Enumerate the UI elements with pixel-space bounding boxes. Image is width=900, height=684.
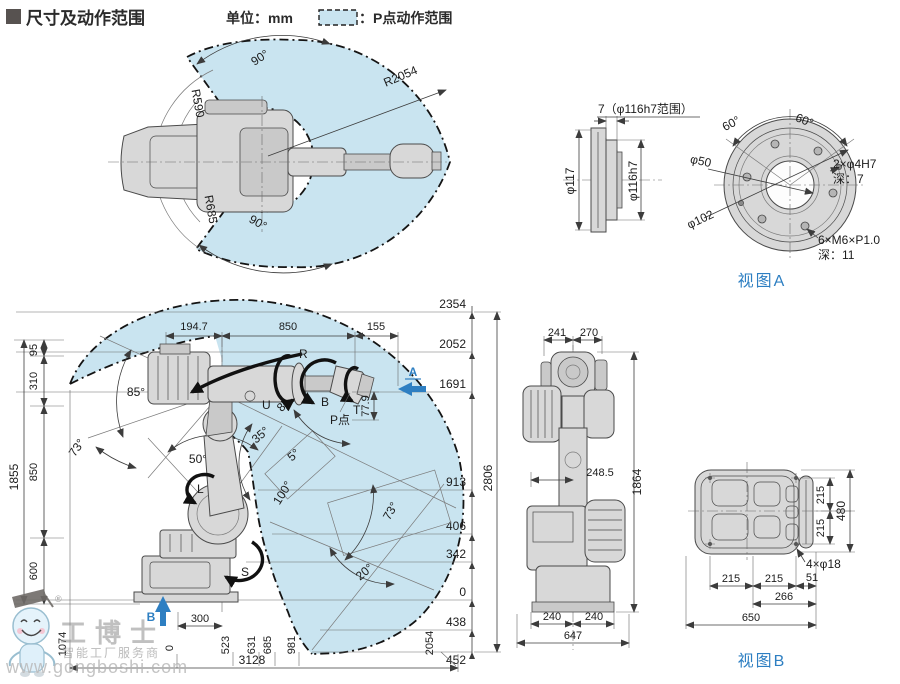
watermark-registered: ® [55,594,62,604]
dim-194-7: 194.7 [180,321,208,333]
pin-depth-note: 深：7 [833,172,864,186]
overall-height-label: 2806 [481,464,495,491]
dim-77-9: 77.9 [360,395,372,416]
dim-215d: 215 [765,573,783,585]
drawing-canvas: 尺寸及动作范围 单位：mm ：P点动作范围 90° R2054 [0,0,900,684]
dim-215c: 215 [722,573,740,585]
level-913: 913 [446,475,466,489]
flange-width-note: 7（φ116h7范围） [598,102,693,116]
pos-685: 685 [262,636,274,654]
l-axis-label: L [197,482,204,496]
level-452: 452 [446,653,466,667]
dia50-label: φ50 [689,152,713,170]
flange-dia117-label: φ117 [563,167,577,194]
u-axis-label: U [262,398,271,412]
dim-248-5: 248.5 [586,467,614,479]
level-1691: 1691 [439,377,466,391]
angle-50: 50° [189,452,207,466]
dim-647: 647 [564,630,582,642]
view-a-label: 视图A [738,272,787,290]
legend-label: ：P点动作范围 [359,10,452,26]
header: 尺寸及动作范围 单位：mm ：P点动作范围 [6,8,452,28]
level-2052: 2052 [439,337,466,351]
base-view: 215 215 480 4×φ18 215 215 51 266 650 视图B [686,462,855,670]
dim-51: 51 [806,572,818,584]
view-b-label: 视图B [738,652,787,670]
dia102-label: φ102 [685,207,716,232]
flange-dia116-label: φ116h7 [626,161,640,202]
p-point-label: P点 [330,413,350,427]
pos-2054: 2054 [424,631,436,655]
dim-3128: 3128 [239,653,266,667]
page-title: 尺寸及动作范围 [26,8,145,28]
watermark-brand: 工博士 [60,619,165,648]
r-axis-label: R [299,347,308,361]
b-axis-label: B [321,395,329,409]
robot-front-silhouette [523,352,625,612]
pos-981: 981 [286,636,298,654]
pos-523: 523 [220,636,232,654]
pos-0: 0 [164,645,176,651]
legend-swatch [319,10,357,25]
dim-480: 480 [834,501,848,521]
dim-240b: 240 [585,611,603,623]
dim-266: 266 [775,591,793,603]
top-view: 90° R2054 R590 R685 90° [108,35,450,272]
level-0: 0 [459,585,466,599]
arrow-a-label: A [409,365,418,379]
dim-300: 300 [191,613,209,625]
dim-155: 155 [367,321,385,333]
s-axis-label: S [241,565,249,579]
level-342: 342 [446,547,466,561]
dim-850h: 850 [279,321,297,333]
flange-front-view: 60° 60° φ50 φ102 2×φ4H7 深：7 6×M6×P1.0 深：… [685,109,881,290]
flange-angle-left-label: 60° [720,113,743,134]
front-view: 241 270 1864 248.5 240 240 647 [517,327,644,650]
title-square-marker [6,9,21,24]
watermark-url: www.gongboshi.com [5,657,188,677]
left-overall-label: 1855 [7,463,21,490]
pin-holes-note: 2×φ4H7 [833,157,877,171]
dimension-drawing-page: 尺寸及动作范围 单位：mm ：P点动作范围 90° R2054 [0,0,900,684]
pos-631: 631 [246,636,258,654]
dim-600: 600 [28,562,40,580]
dim-270: 270 [580,327,598,339]
tap-depth-note: 深：11 [818,248,855,262]
dim-215b: 215 [815,519,827,537]
level-406: 406 [446,519,466,533]
dim-215a: 215 [815,486,827,504]
dim-240a: 240 [543,611,561,623]
dim-95: 95 [28,344,40,356]
level-2354: 2354 [439,297,466,311]
dim-850v: 850 [28,463,40,481]
tap-holes-note: 6×M6×P1.0 [818,233,880,247]
dim-241: 241 [548,327,566,339]
r590-label: R590 [189,88,208,119]
unit-label: 单位：mm [226,10,293,26]
dim-1864: 1864 [630,468,644,495]
dim-650: 650 [742,612,760,624]
dim-310: 310 [28,372,40,390]
flange-side-view: φ117 φ116h7 7（φ116h7范围） [563,102,700,232]
base-holes-note: 4×φ18 [806,557,841,571]
level-438: 438 [446,615,466,629]
angle-85: 85° [127,385,145,399]
